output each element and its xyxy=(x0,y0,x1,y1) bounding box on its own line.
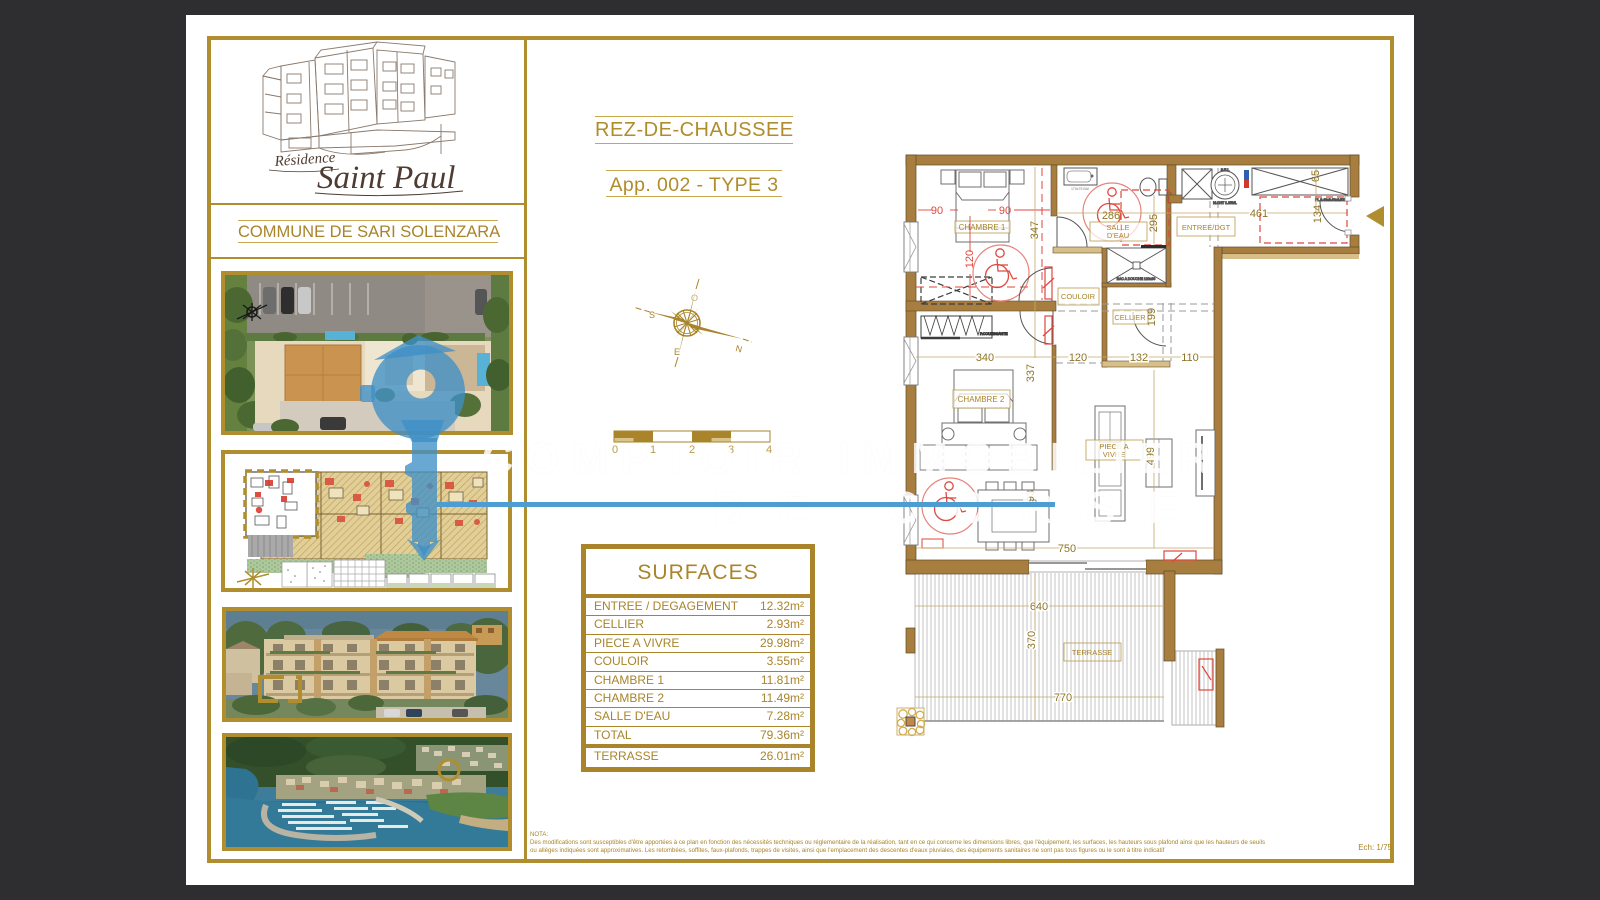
svg-text:S.E.L: S.E.L xyxy=(1221,168,1230,172)
svg-text:CHAMBRE 2: CHAMBRE 2 xyxy=(958,395,1005,404)
svg-text:BAC A DOUCHE 120x90: BAC A DOUCHE 120x90 xyxy=(1117,277,1156,281)
svg-text:2: 2 xyxy=(689,444,695,455)
svg-text:199: 199 xyxy=(1146,308,1158,326)
svg-text:120: 120 xyxy=(964,250,976,268)
svg-text:O: O xyxy=(691,293,698,303)
svg-text:P.COULISSANTE: P.COULISSANTE xyxy=(980,332,1008,336)
svg-text:0: 0 xyxy=(612,444,618,455)
svg-text:D'EAU: D'EAU xyxy=(1107,231,1129,240)
svg-text:Saint Paul: Saint Paul xyxy=(317,160,455,196)
svg-text:295: 295 xyxy=(1148,214,1160,232)
svg-text:461: 461 xyxy=(1250,208,1268,220)
svg-text:370: 370 xyxy=(1026,631,1038,649)
svg-text:TERRASSE: TERRASSE xyxy=(1072,648,1112,657)
svg-text:640: 640 xyxy=(1030,601,1048,613)
svg-text:286: 286 xyxy=(1102,210,1120,222)
svg-text:90: 90 xyxy=(999,205,1011,217)
svg-text:4: 4 xyxy=(766,444,772,455)
svg-text:90: 90 xyxy=(931,205,943,217)
svg-text:347: 347 xyxy=(1029,221,1041,239)
svg-text:CHAMBRE 1: CHAMBRE 1 xyxy=(959,223,1006,232)
svg-text:337: 337 xyxy=(1025,364,1037,382)
svg-text:170x75 BAI: 170x75 BAI xyxy=(1071,187,1089,191)
svg-text:S: S xyxy=(649,310,655,320)
svg-text:340: 340 xyxy=(976,352,994,364)
svg-text:COULOIR: COULOIR xyxy=(1061,292,1096,301)
svg-text:132: 132 xyxy=(1130,352,1148,364)
svg-text:ENTREE/DGT: ENTREE/DGT xyxy=(1182,223,1231,232)
svg-text:E: E xyxy=(674,347,680,357)
svg-text:120: 120 xyxy=(1069,352,1087,364)
svg-text:M.CHT 1.85ML: M.CHT 1.85ML xyxy=(1213,201,1237,205)
svg-text:770: 770 xyxy=(1054,692,1072,704)
svg-text:VIVRE: VIVRE xyxy=(1103,450,1126,459)
svg-text:1: 1 xyxy=(650,444,656,455)
svg-text:CELLIER: CELLIER xyxy=(1114,313,1146,322)
svg-text:N: N xyxy=(735,343,744,354)
svg-text:750: 750 xyxy=(1058,543,1076,555)
svg-text:110: 110 xyxy=(1181,352,1199,364)
svg-text:3: 3 xyxy=(728,444,734,455)
svg-text:499: 499 xyxy=(1145,447,1157,465)
